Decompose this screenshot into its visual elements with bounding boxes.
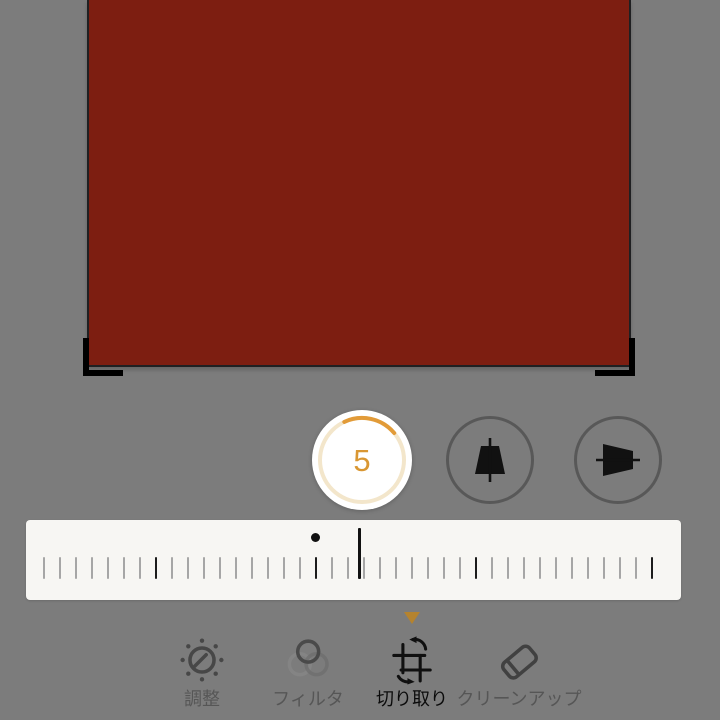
filters-icon xyxy=(285,634,331,686)
horizontal-perspective-icon xyxy=(590,432,646,488)
ruler-tick xyxy=(139,557,141,579)
ruler-tick xyxy=(491,557,493,579)
ruler-tick xyxy=(427,557,429,579)
vertical-perspective-button[interactable] xyxy=(446,416,534,504)
crop-rotate-icon xyxy=(392,634,432,686)
ruler-tick xyxy=(507,557,509,579)
ruler-tick xyxy=(251,557,253,579)
ruler-tick xyxy=(299,557,301,579)
ruler-tick xyxy=(123,557,125,579)
straighten-ruler-dial[interactable] xyxy=(26,520,681,600)
ruler-center-indicator xyxy=(358,528,361,579)
ruler-tick xyxy=(587,557,589,579)
ruler-tick xyxy=(555,557,557,579)
ruler-tick xyxy=(379,557,381,579)
adjust-dial-icon xyxy=(179,634,225,686)
ruler-tick xyxy=(107,557,109,579)
ruler-tick xyxy=(75,557,77,579)
tab-filter-label: フィルタ xyxy=(272,690,344,708)
ruler-tick xyxy=(571,557,573,579)
ruler-tick xyxy=(315,557,317,579)
ruler-tick xyxy=(603,557,605,579)
ruler-tick xyxy=(155,557,157,579)
ruler-tick xyxy=(187,557,189,579)
tab-crop-label: 切り取り xyxy=(376,690,448,708)
ruler-tick xyxy=(171,557,173,579)
tab-cleanup[interactable]: クリーンアップ xyxy=(456,634,581,708)
ruler-tick xyxy=(651,557,653,579)
ruler-tick xyxy=(459,557,461,579)
ruler-tick xyxy=(219,557,221,579)
ruler-tick xyxy=(443,557,445,579)
ruler-tick xyxy=(363,557,365,579)
ruler-tick xyxy=(523,557,525,579)
horizontal-perspective-button[interactable] xyxy=(574,416,662,504)
ruler-tick xyxy=(91,557,93,579)
vertical-perspective-icon xyxy=(462,432,518,488)
photo-editor-screen: 5 xyxy=(0,0,720,720)
ruler-tick xyxy=(619,557,621,579)
tab-filter[interactable]: フィルタ xyxy=(272,634,344,708)
ruler-tick xyxy=(59,557,61,579)
ruler-tick xyxy=(411,557,413,579)
tab-adjust-label: 調整 xyxy=(184,690,220,708)
ruler-tick xyxy=(331,557,333,579)
tab-adjust[interactable]: 調整 xyxy=(179,634,225,708)
crop-handle-bottom-right[interactable] xyxy=(595,370,635,376)
straighten-angle-button[interactable]: 5 xyxy=(312,410,412,510)
ruler-tick xyxy=(203,557,205,579)
ruler-tick xyxy=(43,557,45,579)
ruler-tick xyxy=(539,557,541,579)
crop-photo-area[interactable] xyxy=(87,0,631,367)
tab-cleanup-label: クリーンアップ xyxy=(456,690,581,708)
crop-handle-bottom-left[interactable] xyxy=(83,370,123,376)
ruler-tick xyxy=(395,557,397,579)
ruler-tick xyxy=(475,557,477,579)
ruler-tick xyxy=(347,557,349,579)
selected-tool-pointer-icon xyxy=(404,612,420,624)
ruler-zero-dot xyxy=(311,533,320,542)
cleanup-eraser-icon xyxy=(496,634,542,686)
tab-crop[interactable]: 切り取り xyxy=(376,634,448,708)
ruler-tick xyxy=(267,557,269,579)
rotation-angle-value: 5 xyxy=(353,445,370,476)
ruler-tick xyxy=(635,557,637,579)
ruler-tick xyxy=(235,557,237,579)
ruler-tick xyxy=(283,557,285,579)
